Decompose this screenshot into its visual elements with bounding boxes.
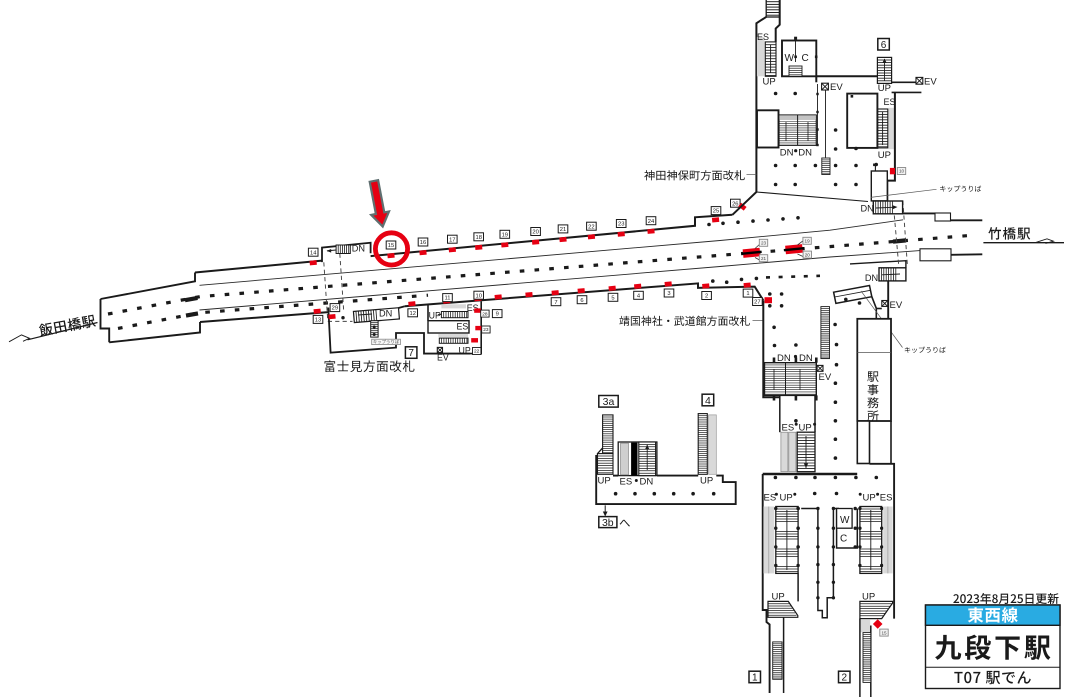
svg-text:UP: UP bbox=[763, 77, 776, 88]
svg-text:15: 15 bbox=[388, 243, 394, 249]
svg-text:UP: UP bbox=[459, 345, 471, 355]
svg-text:ES: ES bbox=[884, 97, 896, 107]
svg-text:DN: DN bbox=[640, 477, 654, 488]
svg-text:25: 25 bbox=[713, 209, 719, 215]
svg-text:DN: DN bbox=[799, 353, 813, 364]
svg-text:2: 2 bbox=[705, 294, 708, 300]
svg-text:W: W bbox=[785, 53, 795, 64]
svg-text:19: 19 bbox=[805, 239, 811, 244]
svg-text:DN: DN bbox=[352, 243, 365, 253]
svg-text:11: 11 bbox=[444, 296, 450, 302]
svg-text:7: 7 bbox=[408, 348, 414, 359]
svg-text:6: 6 bbox=[881, 40, 887, 51]
svg-text:4: 4 bbox=[705, 395, 711, 407]
svg-text:DN: DN bbox=[861, 204, 874, 214]
svg-text:19: 19 bbox=[502, 232, 508, 238]
svg-text:23: 23 bbox=[618, 222, 624, 228]
svg-text:UP: UP bbox=[878, 150, 891, 161]
svg-text:26: 26 bbox=[732, 201, 738, 207]
svg-text:UP: UP bbox=[598, 476, 611, 487]
svg-text:3: 3 bbox=[667, 291, 670, 297]
svg-text:6: 6 bbox=[580, 298, 583, 304]
svg-text:15: 15 bbox=[881, 630, 887, 635]
svg-text:22: 22 bbox=[588, 224, 594, 230]
svg-text:ES: ES bbox=[880, 493, 893, 504]
svg-text:16: 16 bbox=[420, 240, 426, 246]
svg-text:9: 9 bbox=[496, 312, 499, 318]
svg-text:28: 28 bbox=[482, 311, 488, 317]
svg-text:DN: DN bbox=[780, 147, 794, 158]
svg-text:UP: UP bbox=[863, 493, 876, 504]
svg-text:DN: DN bbox=[798, 147, 812, 158]
svg-text:DN: DN bbox=[865, 273, 878, 283]
svg-text:12: 12 bbox=[409, 311, 415, 317]
svg-text:5: 5 bbox=[611, 295, 614, 301]
svg-text:3b: 3b bbox=[602, 517, 614, 529]
svg-text:20: 20 bbox=[805, 252, 811, 257]
svg-text:18: 18 bbox=[475, 235, 481, 241]
svg-text:10: 10 bbox=[475, 293, 481, 299]
svg-text:17: 17 bbox=[449, 237, 455, 243]
svg-text:ES: ES bbox=[764, 493, 777, 504]
svg-text:27: 27 bbox=[754, 300, 760, 306]
svg-text:1: 1 bbox=[752, 673, 758, 684]
svg-text:13: 13 bbox=[315, 317, 321, 323]
svg-text:20: 20 bbox=[532, 230, 538, 236]
svg-text:10: 10 bbox=[899, 169, 905, 174]
svg-text:C: C bbox=[802, 53, 809, 64]
svg-text:UP: UP bbox=[780, 493, 793, 504]
svg-text:EV: EV bbox=[819, 372, 832, 383]
svg-text:21: 21 bbox=[560, 227, 566, 233]
svg-text:21: 21 bbox=[761, 256, 767, 261]
svg-text:23: 23 bbox=[483, 327, 489, 333]
svg-text:29: 29 bbox=[332, 306, 338, 312]
svg-text:2: 2 bbox=[842, 673, 848, 684]
svg-text:DN: DN bbox=[379, 309, 392, 319]
svg-text:UP: UP bbox=[878, 83, 891, 94]
svg-text:3a: 3a bbox=[603, 396, 615, 408]
svg-text:UP: UP bbox=[700, 476, 713, 487]
svg-text:ES: ES bbox=[757, 32, 769, 42]
svg-text:ES: ES bbox=[457, 322, 469, 332]
svg-text:7: 7 bbox=[554, 300, 557, 306]
svg-text:DN: DN bbox=[777, 353, 791, 364]
svg-text:23: 23 bbox=[761, 241, 767, 246]
svg-text:1: 1 bbox=[746, 291, 749, 297]
svg-text:ES: ES bbox=[782, 423, 795, 434]
svg-text:22: 22 bbox=[474, 349, 480, 355]
svg-text:14: 14 bbox=[310, 250, 317, 256]
svg-text:ES: ES bbox=[620, 477, 633, 488]
svg-text:C: C bbox=[840, 534, 847, 545]
svg-text:W: W bbox=[840, 515, 850, 526]
svg-text:EV: EV bbox=[890, 300, 903, 311]
svg-text:UP: UP bbox=[799, 423, 812, 434]
svg-text:UP: UP bbox=[429, 310, 441, 320]
svg-text:EV: EV bbox=[830, 82, 843, 93]
svg-text:EV: EV bbox=[437, 353, 449, 363]
svg-text:24: 24 bbox=[648, 219, 655, 225]
svg-text:EV: EV bbox=[924, 76, 937, 87]
